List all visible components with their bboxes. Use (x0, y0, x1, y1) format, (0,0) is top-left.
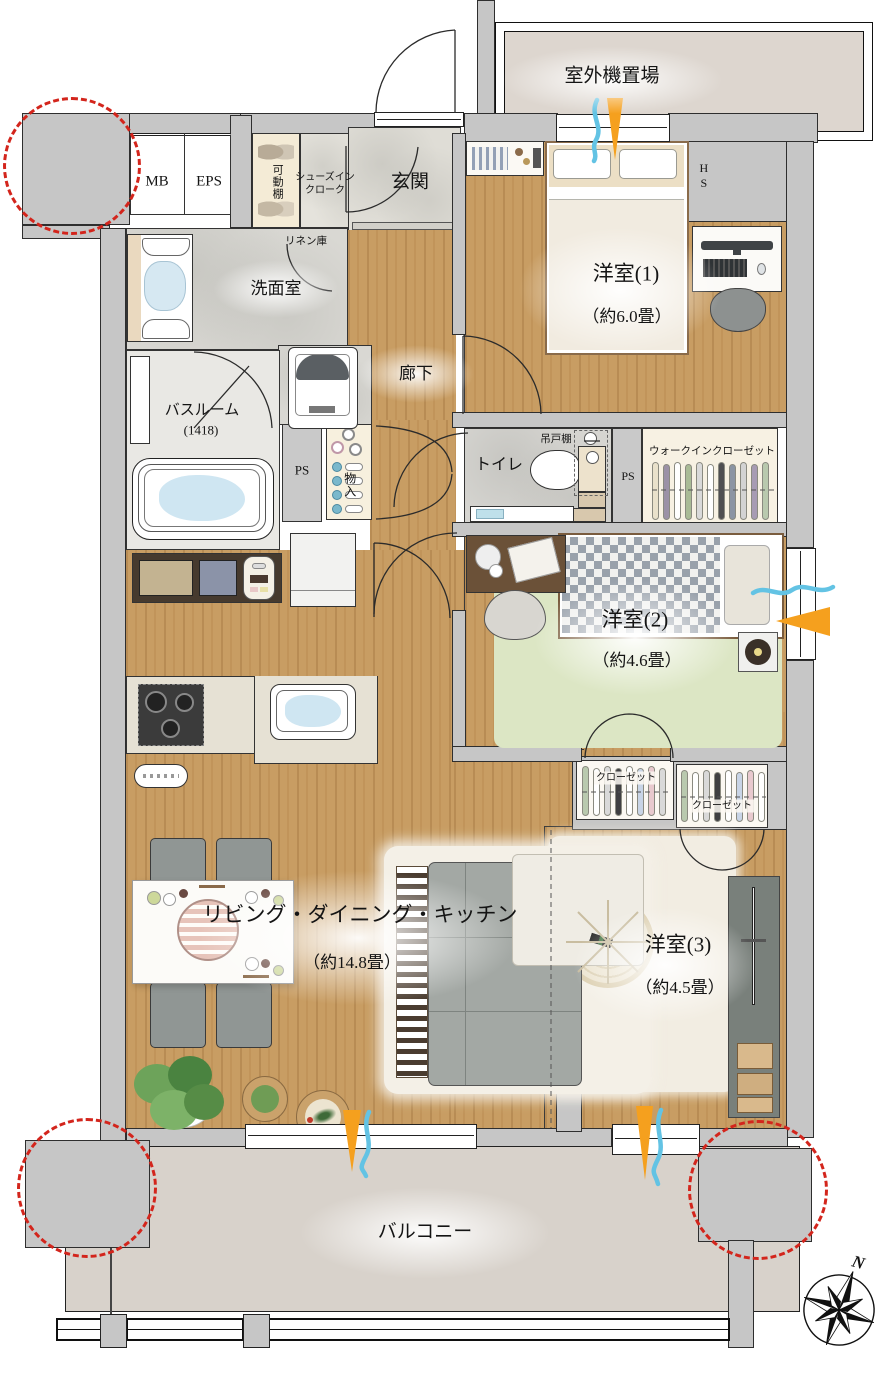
bath-bench (130, 356, 150, 444)
top-wall-east-b (668, 113, 818, 143)
mb-eps-divider (184, 133, 185, 215)
room1-window (556, 114, 670, 142)
dining-chair (216, 838, 272, 886)
pillar-highlight-circle (17, 1118, 157, 1258)
wall-corridor-room1 (452, 133, 466, 335)
railing-post (100, 1314, 127, 1348)
plant-pot-icon (134, 1056, 230, 1136)
bottom-wall-b (476, 1128, 612, 1148)
paper-roll-icon (584, 432, 597, 445)
desk-chair (484, 590, 546, 640)
bottle-row (332, 504, 342, 514)
dining-chair (150, 838, 206, 886)
balcony-window-room3 (612, 1124, 700, 1155)
entrance-door-arc (376, 30, 455, 113)
dining-chair (150, 982, 206, 1048)
cup-icon (342, 428, 355, 441)
desk-chair (710, 288, 766, 332)
wall-corridor-room2 (452, 610, 466, 752)
bottle-row (332, 462, 342, 472)
fan-unit (738, 632, 778, 672)
entrance-floor (348, 127, 461, 232)
gas-stove (138, 684, 204, 746)
single-bed (558, 533, 784, 639)
plant-pot-icon (242, 1076, 288, 1122)
toilet-bowl (530, 450, 580, 490)
balcony-railing (56, 1318, 102, 1341)
meter-box (130, 133, 231, 215)
entrance-door-sill (374, 112, 464, 127)
dining-table (132, 880, 294, 984)
bottle-row (345, 477, 363, 485)
corridor-floor-lower (370, 420, 456, 560)
dining-chair (216, 982, 272, 1048)
pillar-highlight-circle (3, 97, 141, 235)
kitchen-sink (270, 684, 356, 740)
floor-plan: MB EPS 可動棚 シューズイン クローク 玄関 リネン庫 (0, 0, 884, 1400)
cup-icon (349, 443, 362, 456)
compass-icon (792, 1259, 884, 1358)
room2-window (786, 548, 816, 660)
bottle-row (345, 463, 363, 471)
double-bed (545, 141, 689, 355)
hs-shaft (688, 141, 788, 222)
refrigerator (290, 533, 356, 607)
pillar-highlight-circle (688, 1120, 828, 1260)
washing-machine (288, 347, 358, 429)
wall-room1-south (452, 412, 788, 428)
balcony-railing (268, 1318, 730, 1341)
right-outer-wall-lower (786, 660, 814, 1138)
ps-left-box (282, 424, 322, 522)
dresser-shelf (466, 141, 544, 176)
closet-room3 (676, 764, 768, 828)
kettle-item (134, 764, 188, 788)
ps-right-box (612, 428, 642, 526)
wall-room2-south-a (452, 746, 582, 762)
kitchen-back-counter (132, 553, 282, 603)
balcony-railing (126, 1318, 244, 1341)
desk (692, 226, 782, 292)
entrance-outer-wall (477, 0, 495, 116)
railing-post (243, 1314, 270, 1348)
vanity-unit (127, 234, 193, 342)
bottle-row (345, 491, 363, 499)
bottle-row (345, 505, 363, 513)
bottom-wall-notch (556, 1092, 582, 1132)
left-outer-wall (100, 228, 126, 1148)
sofa-shelf-runner (396, 866, 428, 1078)
shoe-icon (258, 139, 294, 165)
paper-roll-icon (586, 451, 599, 464)
tv-board (728, 876, 780, 1118)
drain-line (110, 1248, 112, 1318)
eps-right-wall (230, 115, 252, 228)
toilet-drawer (572, 508, 606, 522)
bathtub (132, 458, 274, 540)
bottle-row (332, 490, 342, 500)
cup-icon (331, 441, 344, 454)
right-outer-wall-upper (786, 141, 814, 548)
balcony-window-ldk (245, 1124, 477, 1149)
study-desk (466, 535, 566, 593)
sofa-blanket (512, 854, 644, 966)
top-wall-east-a (464, 113, 558, 143)
wall-room2-south-b (670, 746, 788, 762)
compass-north-label: N (849, 1251, 868, 1273)
entrance-step (352, 222, 458, 230)
soap-item (476, 509, 504, 519)
bottle-row (332, 476, 342, 486)
shoe-icon (258, 196, 294, 222)
